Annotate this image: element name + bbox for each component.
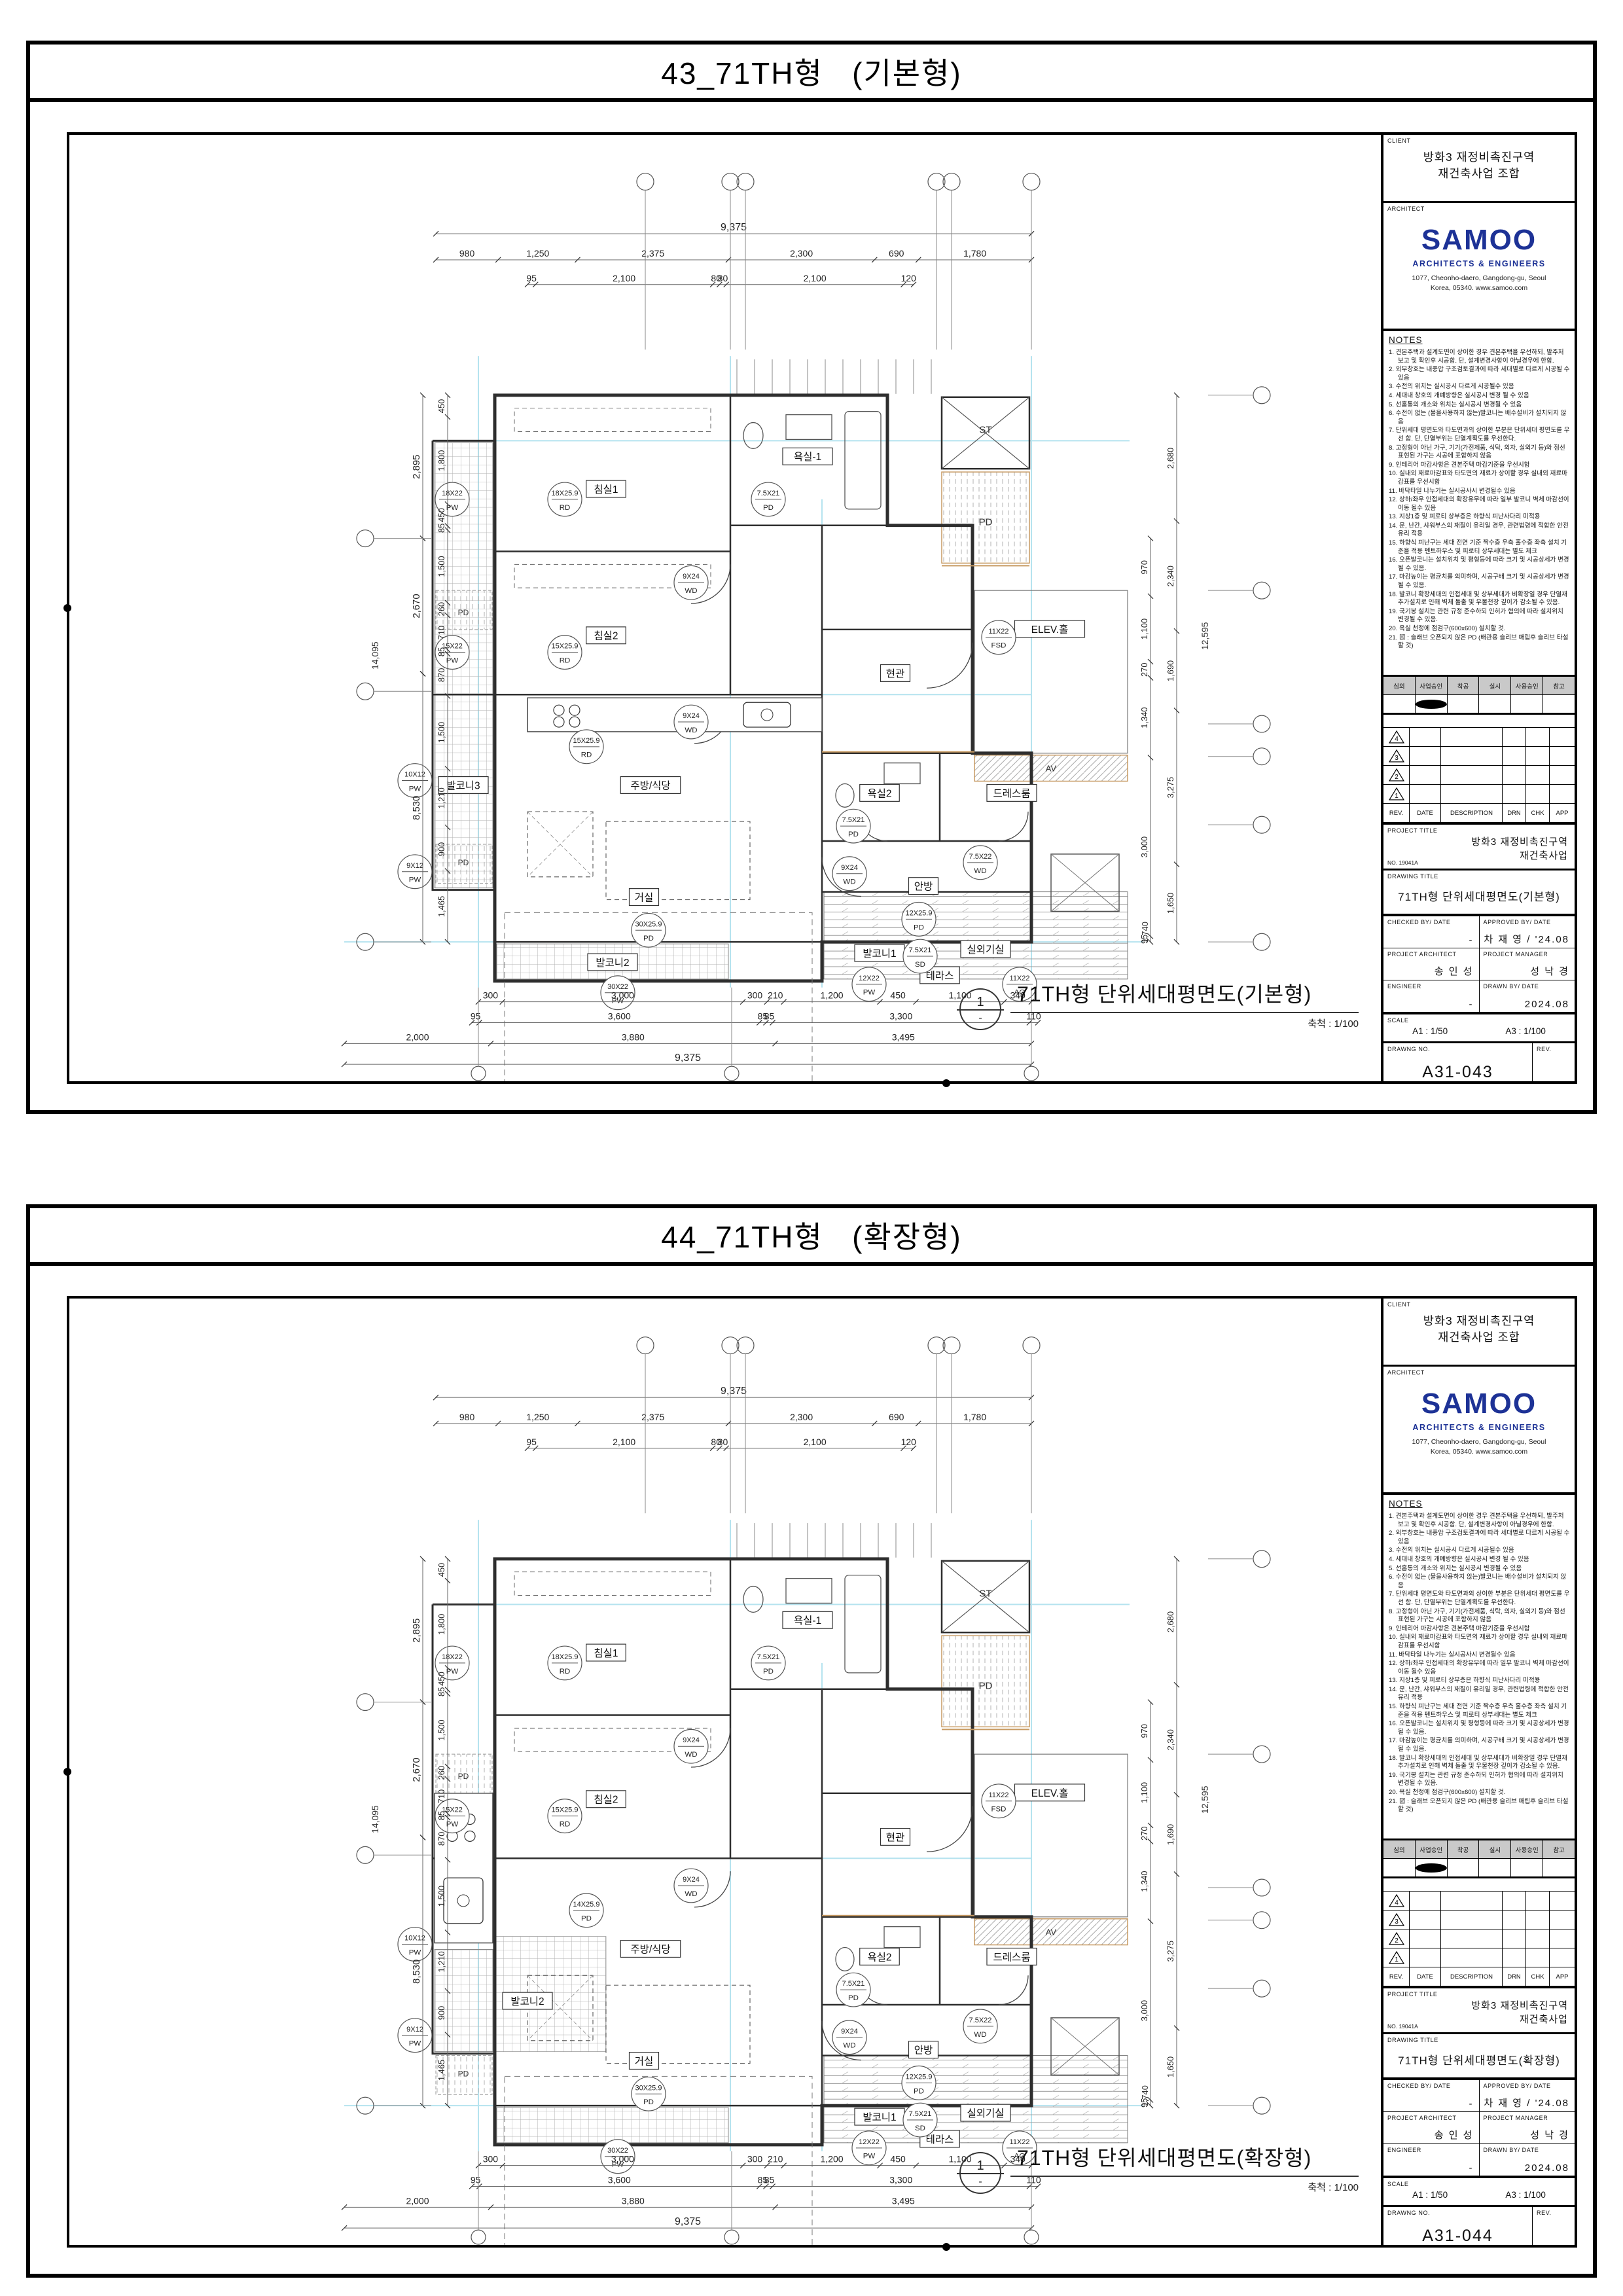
svg-text:9,375: 9,375 [721, 222, 747, 233]
svg-text:실외기실: 실외기실 [967, 944, 1005, 956]
svg-text:710: 710 [437, 626, 446, 640]
svg-text:1,340: 1,340 [1139, 707, 1149, 728]
client-name-line2: 재건축사업 조합 [1383, 166, 1575, 182]
svg-text:3,000: 3,000 [611, 990, 634, 1001]
svg-text:9X24: 9X24 [841, 2028, 858, 2036]
svg-text:침실1: 침실1 [594, 1647, 618, 1659]
architect-address1: 1077, Cheonho-daero, Gangdong-gu, Seoul [1383, 274, 1575, 283]
svg-text:3,600: 3,600 [608, 1011, 631, 1022]
svg-text:PD: PD [763, 1668, 774, 1676]
svg-text:테라스: 테라스 [926, 970, 954, 982]
svg-text:3,880: 3,880 [622, 1031, 645, 1042]
svg-text:980: 980 [459, 248, 475, 259]
svg-text:RD: RD [560, 657, 571, 665]
svg-text:안방: 안방 [914, 2045, 933, 2056]
svg-text:RD: RD [581, 751, 592, 759]
svg-text:PD: PD [458, 858, 469, 867]
svg-text:1,500: 1,500 [437, 722, 446, 743]
svg-text:3,880: 3,880 [622, 2195, 645, 2206]
svg-text:3,275: 3,275 [1166, 1941, 1175, 1962]
svg-text:SD: SD [915, 2125, 925, 2132]
svg-text:2,100: 2,100 [804, 273, 827, 283]
notes-heading: NOTES [1389, 335, 1570, 345]
drawing-frame: 침실1욕실-1침실2현관ELEV.홀욕실2드레스룸주방/식당안방거실발코니3발코… [67, 132, 1577, 1084]
svg-text:발코니2: 발코니2 [596, 957, 629, 969]
svg-text:3,495: 3,495 [892, 2195, 915, 2206]
svg-text:9X24: 9X24 [683, 573, 700, 581]
svg-text:95: 95 [1139, 935, 1149, 944]
svg-text:RD: RD [560, 504, 571, 512]
notes-box: NOTES 1. 견본주택과 설계도면이 상이한 경우 견본주택을 우선하되, … [1383, 331, 1575, 677]
stage-table: 심의사업승인착공실시사용승인참고 [1383, 1840, 1575, 1878]
architect-box: ARCHITECT SAMOO ARCHITECTS & ENGINEERS 1… [1383, 1367, 1575, 1495]
svg-text:1,100: 1,100 [1139, 1782, 1149, 1803]
svg-text:1,200: 1,200 [821, 2154, 844, 2164]
svg-text:7.5X21: 7.5X21 [757, 490, 780, 497]
svg-text:침실1: 침실1 [594, 484, 618, 495]
sheet-title: 43_71TH형 (기본형) [661, 50, 962, 93]
svg-text:14,095: 14,095 [370, 1805, 380, 1833]
svg-text:1,210: 1,210 [437, 1951, 446, 1972]
scale-box: SCALE A1 : 1/50 A3 : 1/100 [1383, 2178, 1575, 2207]
sheet-extended: 44_71TH형 (확장형) 침실1욕실-1침실2현관ELEV.홀욕실2드레스룸… [26, 1204, 1597, 2278]
svg-text:4: 4 [1395, 1899, 1399, 1907]
notes-list: 1. 견본주택과 설계도면이 상이한 경우 견본주택을 우선하되, 발주처 보고… [1389, 1513, 1570, 1814]
drawing-number-box: DRAWNG NO. A31-043 REV. [1383, 1043, 1575, 1081]
svg-text:18X22: 18X22 [442, 1653, 463, 1661]
svg-text:450: 450 [437, 1563, 446, 1577]
svg-text:2,670: 2,670 [411, 594, 422, 618]
svg-text:거실: 거실 [635, 892, 653, 904]
svg-text:1,200: 1,200 [821, 990, 844, 1001]
svg-text:300: 300 [747, 2154, 763, 2164]
svg-text:1,465: 1,465 [437, 896, 446, 917]
svg-text:270: 270 [1139, 662, 1149, 677]
scale-box: SCALE A1 : 1/50 A3 : 1/100 [1383, 1014, 1575, 1043]
svg-text:ELEV.홀: ELEV.홀 [1031, 1787, 1069, 1799]
svg-text:테라스: 테라스 [926, 2134, 954, 2145]
svg-text:710: 710 [437, 1789, 446, 1804]
caption-scale: 축척 : 1/100 [1010, 1013, 1359, 1030]
svg-text:욕실2: 욕실2 [867, 1951, 891, 1963]
caption-title: 71TH형 단위세대평면도(확장형) [1010, 2142, 1359, 2177]
svg-text:ST: ST [979, 425, 991, 436]
signoff-grid: CHECKED BY/ DATE- APPROVED BY/ DATE차 재 영… [1383, 916, 1575, 1014]
svg-text:1,500: 1,500 [437, 1886, 446, 1907]
svg-text:12X25.9: 12X25.9 [906, 2073, 933, 2081]
svg-text:270: 270 [1139, 1826, 1149, 1840]
svg-text:SD: SD [915, 961, 925, 969]
svg-text:980: 980 [459, 1412, 475, 1422]
svg-text:실외기실: 실외기실 [967, 2108, 1005, 2119]
svg-text:PW: PW [446, 1821, 459, 1829]
sheet-title-bar: 44_71TH형 (확장형) [30, 1208, 1593, 1266]
svg-text:4: 4 [1395, 736, 1399, 743]
svg-text:210: 210 [768, 990, 783, 1001]
svg-text:드레스룸: 드레스룸 [993, 1951, 1031, 1963]
svg-text:발코니3: 발코니3 [446, 780, 480, 792]
svg-text:WD: WD [685, 726, 697, 734]
svg-text:AV: AV [1046, 1928, 1057, 1937]
svg-text:주방/식당: 주방/식당 [630, 1944, 670, 1956]
svg-text:3,000: 3,000 [1139, 836, 1149, 857]
revision-table: 4321REV.DATEDESCRIPTIONDRNCHKAPP [1383, 728, 1575, 825]
caption-number-bubble: 1 - [959, 988, 1001, 1030]
svg-text:900: 900 [437, 842, 446, 857]
notes-heading: NOTES [1389, 1499, 1570, 1509]
svg-text:870: 870 [437, 668, 446, 683]
caption-scale: 축척 : 1/100 [1010, 2177, 1359, 2194]
svg-text:1,650: 1,650 [1166, 2056, 1175, 2077]
svg-text:7.5X21: 7.5X21 [757, 1653, 780, 1661]
svg-text:30X25.9: 30X25.9 [635, 2084, 662, 2092]
svg-text:11X22: 11X22 [989, 628, 1009, 636]
sheet-title-bar: 43_71TH형 (기본형) [30, 45, 1593, 102]
svg-text:11X22: 11X22 [989, 1791, 1009, 1799]
svg-text:PD: PD [763, 504, 774, 512]
svg-text:WD: WD [974, 867, 986, 875]
architect-address2: Korea, 05340. www.samoo.com [1383, 1447, 1575, 1457]
project-number: NO. 19041A [1387, 859, 1418, 866]
svg-text:발코니2: 발코니2 [510, 1996, 544, 2007]
svg-text:2,000: 2,000 [406, 2195, 429, 2206]
svg-text:80: 80 [718, 273, 728, 283]
svg-text:9X12: 9X12 [406, 2026, 423, 2034]
svg-text:300: 300 [483, 990, 499, 1001]
svg-text:3: 3 [1395, 1918, 1399, 1926]
svg-text:PW: PW [409, 785, 421, 793]
svg-text:95: 95 [526, 273, 537, 283]
svg-text:PW: PW [863, 2153, 876, 2161]
svg-text:2,340: 2,340 [1166, 565, 1175, 586]
svg-text:1: 1 [1395, 793, 1399, 800]
svg-text:120: 120 [901, 1437, 917, 1447]
svg-text:12,595: 12,595 [1200, 1785, 1210, 1814]
svg-text:15X25.9: 15X25.9 [552, 1806, 579, 1814]
svg-text:15X25.9: 15X25.9 [573, 737, 600, 745]
svg-text:1,500: 1,500 [437, 1719, 446, 1740]
svg-text:85: 85 [764, 2175, 775, 2185]
client-name-line1: 방화3 재정비촉진구역 [1383, 149, 1575, 166]
svg-text:ST: ST [979, 1588, 991, 1600]
svg-text:안방: 안방 [914, 881, 933, 893]
svg-text:PD: PD [979, 1681, 993, 1692]
project-title-box: PROJECT TITLE 방화3 재정비촉진구역 재건축사업 NO. 1904… [1383, 825, 1575, 870]
svg-text:2,100: 2,100 [804, 1437, 827, 1447]
svg-text:3,300: 3,300 [889, 2175, 912, 2185]
svg-text:WD: WD [843, 878, 855, 886]
svg-text:9X24: 9X24 [683, 1736, 700, 1744]
svg-text:10X12: 10X12 [404, 1935, 425, 1943]
svg-text:300: 300 [747, 990, 763, 1001]
svg-text:2: 2 [1395, 774, 1399, 781]
drawing-title: 71TH형 단위세대평면도(기본형) [1383, 888, 1575, 904]
svg-text:PD: PD [914, 924, 924, 931]
svg-text:PW: PW [446, 657, 459, 665]
svg-text:2,000: 2,000 [406, 1031, 429, 1042]
svg-text:9X24: 9X24 [841, 864, 858, 872]
drawing-number: A31-043 [1383, 1063, 1532, 1082]
floor-plan-area: 침실1욕실-1침실2현관ELEV.홀욕실2드레스룸주방/식당안방거실발코니3발코… [69, 135, 1381, 1081]
svg-text:85: 85 [437, 1687, 446, 1696]
svg-text:30X25.9: 30X25.9 [635, 920, 662, 928]
floor-plan-drawing: 침실1욕실-1침실2현관ELEV.홀욕실2드레스룸주방/식당안방거실발코니3발코… [69, 135, 1381, 1081]
svg-text:WD: WD [685, 1890, 697, 1898]
svg-text:1,800: 1,800 [437, 1614, 446, 1635]
svg-text:9,375: 9,375 [721, 1386, 747, 1397]
svg-text:RD: RD [560, 1668, 571, 1676]
drawing-frame: 침실1욕실-1침실2현관ELEV.홀욕실2드레스룸주방/식당안방거실발코니2발코… [67, 1296, 1577, 2248]
drawing-title: 71TH형 단위세대평면도(확장형) [1383, 2051, 1575, 2068]
svg-text:85: 85 [764, 1011, 775, 1022]
svg-text:10X12: 10X12 [404, 771, 425, 779]
spacer-row [1383, 715, 1575, 728]
svg-text:PD: PD [458, 1772, 469, 1781]
drawing-number: A31-044 [1383, 2227, 1532, 2246]
svg-text:1,500: 1,500 [437, 556, 446, 577]
drawing-number-box: DRAWNG NO. A31-044 REV. [1383, 2207, 1575, 2245]
svg-text:9X24: 9X24 [683, 712, 700, 720]
svg-text:주방/식당: 주방/식당 [630, 780, 670, 792]
svg-text:PD: PD [914, 2087, 924, 2095]
caption-number-bubble: 1 - [959, 2152, 1001, 2194]
svg-text:95: 95 [471, 1011, 481, 1022]
notes-list: 1. 견본주택과 설계도면이 상이한 경우 견본주택을 우선하되, 발주처 보고… [1389, 349, 1570, 651]
client-box: CLIENT 방화3 재정비촉진구역 재건축사업 조합 [1383, 1299, 1575, 1367]
client-name-line2: 재건축사업 조합 [1383, 1329, 1575, 1346]
svg-text:95: 95 [1139, 2098, 1149, 2108]
svg-text:8,530: 8,530 [411, 796, 422, 820]
floor-plan-area: 침실1욕실-1침실2현관ELEV.홀욕실2드레스룸주방/식당안방거실발코니2발코… [69, 1299, 1381, 2245]
architect-address2: Korea, 05340. www.samoo.com [1383, 283, 1575, 293]
svg-text:1,250: 1,250 [526, 1412, 549, 1422]
svg-text:현관: 현관 [886, 668, 904, 679]
caption-title: 71TH형 단위세대평면도(기본형) [1010, 978, 1359, 1013]
svg-text:PW: PW [863, 989, 876, 997]
svg-text:690: 690 [889, 248, 904, 259]
svg-text:260: 260 [437, 602, 446, 617]
svg-text:7.5X22: 7.5X22 [969, 2017, 992, 2024]
svg-text:2,680: 2,680 [1166, 1611, 1175, 1632]
svg-text:PW: PW [409, 876, 421, 884]
svg-text:1,690: 1,690 [1166, 660, 1175, 681]
svg-text:85: 85 [437, 524, 446, 533]
svg-text:80: 80 [718, 1437, 728, 1447]
svg-text:12X22: 12X22 [859, 975, 880, 982]
svg-text:7.5X21: 7.5X21 [909, 2110, 932, 2118]
svg-text:2,300: 2,300 [790, 248, 813, 259]
svg-text:WD: WD [843, 2042, 855, 2050]
svg-text:300: 300 [483, 2154, 499, 2164]
svg-text:2,895: 2,895 [411, 1619, 422, 1643]
svg-text:FSD: FSD [991, 1806, 1007, 1814]
svg-text:7.5X21: 7.5X21 [842, 816, 865, 824]
svg-text:AV: AV [1046, 764, 1057, 774]
svg-text:450: 450 [890, 990, 906, 1001]
svg-text:18X25.9: 18X25.9 [552, 490, 579, 497]
drawing-caption: 1 - 71TH형 단위세대평면도(확장형) 축척 : 1/100 [959, 2142, 1359, 2194]
svg-text:900: 900 [437, 2006, 446, 2020]
svg-text:2,680: 2,680 [1166, 448, 1175, 469]
svg-text:7.5X21: 7.5X21 [842, 1980, 865, 1988]
svg-text:WD: WD [685, 587, 697, 595]
svg-text:450: 450 [437, 508, 446, 522]
drawing-title-box: DRAWING TITLE 71TH형 단위세대평면도(확장형) [1383, 2034, 1575, 2080]
svg-text:15X25.9: 15X25.9 [552, 643, 579, 651]
svg-text:1,250: 1,250 [526, 248, 549, 259]
svg-text:PW: PW [409, 1948, 421, 1956]
svg-text:14X25.9: 14X25.9 [573, 1901, 600, 1909]
svg-text:7.5X22: 7.5X22 [969, 853, 992, 861]
svg-text:870: 870 [437, 1832, 446, 1846]
svg-text:1,340: 1,340 [1139, 1871, 1149, 1892]
svg-text:210: 210 [768, 2154, 783, 2164]
svg-text:3,000: 3,000 [611, 2154, 634, 2164]
svg-text:WD: WD [974, 2031, 986, 2039]
project-title-box: PROJECT TITLE 방화3 재정비촉진구역 재건축사업 NO. 1904… [1383, 1988, 1575, 2034]
svg-text:2,340: 2,340 [1166, 1729, 1175, 1750]
samoo-logo-sub: ARCHITECTS & ENGINEERS [1383, 1423, 1575, 1432]
svg-text:3,300: 3,300 [889, 1011, 912, 1022]
svg-text:1,210: 1,210 [437, 787, 446, 808]
svg-text:1,780: 1,780 [963, 1412, 986, 1422]
svg-text:RD: RD [560, 1821, 571, 1829]
signoff-grid: CHECKED BY/ DATE- APPROVED BY/ DATE차 재 영… [1383, 2080, 1575, 2178]
svg-text:1,800: 1,800 [437, 450, 446, 471]
svg-text:2,100: 2,100 [613, 1437, 635, 1447]
svg-text:970: 970 [1139, 1724, 1149, 1738]
svg-text:2,895: 2,895 [411, 455, 422, 479]
svg-text:1: 1 [1395, 1956, 1399, 1964]
svg-text:12,595: 12,595 [1200, 622, 1210, 650]
svg-text:8,530: 8,530 [411, 1960, 422, 1984]
svg-text:1,465: 1,465 [437, 2060, 446, 2081]
svg-text:현관: 현관 [886, 1831, 904, 1843]
svg-text:PD: PD [979, 517, 993, 528]
svg-text:PD: PD [848, 1994, 859, 2002]
svg-text:발코니1: 발코니1 [863, 2111, 896, 2123]
svg-text:690: 690 [889, 1412, 904, 1422]
samoo-logo-sub: ARCHITECTS & ENGINEERS [1383, 259, 1575, 268]
svg-text:970: 970 [1139, 560, 1149, 575]
svg-text:120: 120 [901, 273, 917, 283]
svg-text:3,275: 3,275 [1166, 777, 1175, 798]
sheet-basic: 43_71TH형 (기본형) 침실1욕실-1침실2현관ELEV.홀욕실2드레스룸… [26, 41, 1597, 1114]
svg-text:12X25.9: 12X25.9 [906, 909, 933, 917]
svg-text:2,100: 2,100 [613, 273, 635, 283]
samoo-logo: SAMOO [1383, 1388, 1575, 1420]
stage-table: 심의사업승인착공실시사용승인참고 [1383, 677, 1575, 715]
svg-text:PD: PD [643, 935, 654, 942]
svg-text:PD: PD [643, 2098, 654, 2106]
svg-text:1,650: 1,650 [1166, 893, 1175, 914]
svg-text:3: 3 [1395, 755, 1399, 762]
sheet-title: 44_71TH형 (확장형) [661, 1213, 962, 1257]
floor-plan-drawing: 침실1욕실-1침실2현관ELEV.홀욕실2드레스룸주방/식당안방거실발코니2발코… [69, 1299, 1381, 2245]
svg-text:침실2: 침실2 [594, 630, 618, 642]
client-name-line1: 방화3 재정비촉진구역 [1383, 1313, 1575, 1329]
svg-text:WD: WD [685, 1751, 697, 1759]
svg-text:3,000: 3,000 [1139, 2000, 1149, 2021]
svg-text:FSD: FSD [991, 642, 1007, 650]
architect-box: ARCHITECT SAMOO ARCHITECTS & ENGINEERS 1… [1383, 203, 1575, 331]
svg-text:450: 450 [437, 399, 446, 414]
svg-text:2: 2 [1395, 1937, 1399, 1945]
drawing-title-box: DRAWING TITLE 71TH형 단위세대평면도(기본형) [1383, 870, 1575, 916]
svg-text:260: 260 [437, 1766, 446, 1780]
samoo-logo: SAMOO [1383, 224, 1575, 257]
svg-text:12X22: 12X22 [859, 2138, 880, 2146]
svg-text:거실: 거실 [635, 2056, 653, 2068]
architect-address1: 1077, Cheonho-daero, Gangdong-gu, Seoul [1383, 1437, 1575, 1447]
svg-text:1,690: 1,690 [1166, 1824, 1175, 1845]
svg-text:450: 450 [437, 1672, 446, 1686]
svg-text:발코니1: 발코니1 [863, 948, 896, 960]
svg-text:85: 85 [437, 1811, 446, 1820]
svg-text:ELEV.홀: ELEV.홀 [1031, 624, 1069, 636]
svg-text:2,300: 2,300 [790, 1412, 813, 1422]
svg-text:드레스룸: 드레스룸 [993, 787, 1031, 799]
spacer-row [1383, 1878, 1575, 1892]
title-block: CLIENT 방화3 재정비촉진구역 재건축사업 조합 ARCHITECT SA… [1381, 1299, 1575, 2245]
svg-text:9X12: 9X12 [406, 862, 423, 870]
svg-text:7.5X21: 7.5X21 [909, 946, 932, 954]
svg-text:95: 95 [471, 2175, 481, 2185]
svg-text:1,100: 1,100 [1139, 619, 1149, 639]
revision-table: 4321REV.DATEDESCRIPTIONDRNCHKAPP [1383, 1892, 1575, 1988]
drawing-caption: 1 - 71TH형 단위세대평면도(기본형) 축척 : 1/100 [959, 978, 1359, 1030]
notes-box: NOTES 1. 견본주택과 설계도면이 상이한 경우 견본주택을 우선하되, … [1383, 1495, 1575, 1840]
svg-text:95: 95 [526, 1437, 537, 1447]
svg-text:욕실2: 욕실2 [867, 787, 891, 799]
project-number: NO. 19041A [1387, 2023, 1418, 2030]
svg-text:욕실-1: 욕실-1 [794, 451, 821, 463]
client-box: CLIENT 방화3 재정비촉진구역 재건축사업 조합 [1383, 135, 1575, 203]
svg-text:PW: PW [409, 2040, 421, 2048]
svg-text:18X22: 18X22 [442, 490, 463, 497]
svg-text:PD: PD [581, 1915, 592, 1923]
svg-text:450: 450 [890, 2154, 906, 2164]
svg-text:18X25.9: 18X25.9 [552, 1653, 579, 1661]
svg-text:1,780: 1,780 [963, 248, 986, 259]
svg-text:85: 85 [437, 647, 446, 656]
svg-text:9,375: 9,375 [675, 2216, 701, 2227]
svg-text:침실2: 침실2 [594, 1794, 618, 1806]
title-block: CLIENT 방화3 재정비촉진구역 재건축사업 조합 ARCHITECT SA… [1381, 135, 1575, 1081]
svg-text:PD: PD [848, 831, 859, 838]
svg-text:3,600: 3,600 [608, 2175, 631, 2185]
svg-text:PD: PD [458, 2069, 469, 2078]
svg-text:14,095: 14,095 [370, 641, 380, 670]
svg-text:욕실-1: 욕실-1 [794, 1615, 821, 1626]
svg-text:2,670: 2,670 [411, 1757, 422, 1782]
svg-text:9,375: 9,375 [675, 1052, 701, 1064]
svg-text:PD: PD [458, 608, 469, 617]
svg-text:9X24: 9X24 [683, 1876, 700, 1884]
svg-text:3,495: 3,495 [892, 1031, 915, 1042]
